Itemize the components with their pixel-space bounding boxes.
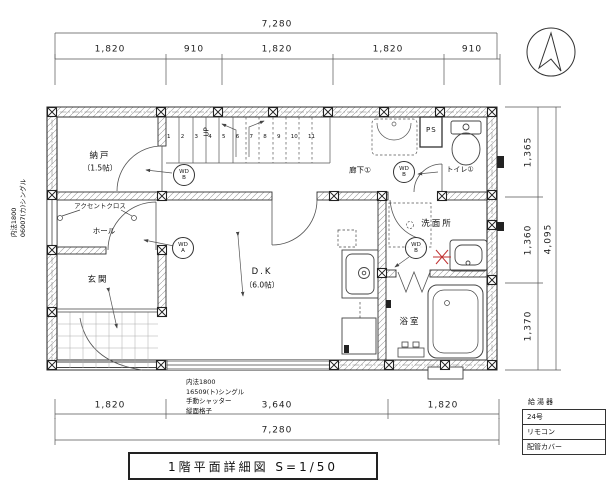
- stairs: [166, 117, 330, 163]
- room-label-entrance: 玄関: [87, 276, 108, 285]
- accent-cloth-label: アクセントクロス: [74, 203, 126, 210]
- stair-number: 7: [250, 134, 254, 140]
- bottom-window-note: 内法1800 16509(ト)シングル 手動シャッター 縦面格子: [186, 378, 244, 416]
- kitchen-sink-fixture: [338, 230, 378, 354]
- dim-right-seg-3: 1,370: [525, 311, 534, 342]
- door-arcs: [80, 146, 442, 370]
- stair-number: 3: [195, 134, 199, 140]
- bottom-window-note-line: 16509(ト)シングル: [186, 388, 244, 398]
- dim-top-seg-1: 1,820: [95, 46, 126, 55]
- dim-bottom-seg-1: 1,820: [95, 402, 126, 411]
- room-label-dk: D.K: [252, 268, 273, 277]
- vanity-fixture: [450, 240, 487, 271]
- bottom-window-note-line: 内法1800: [186, 378, 244, 388]
- dim-top-seg-5: 910: [462, 46, 482, 55]
- dim-top-seg-2: 910: [184, 46, 204, 55]
- dim-right-seg-2: 1,360: [525, 225, 534, 256]
- door-tag-wd-b-washroom: WD B: [405, 237, 427, 259]
- dim-bottom-seg-3: 1,820: [428, 402, 459, 411]
- heater-row: 配管カバー: [522, 439, 606, 455]
- stair-step-numbers: 1 2 3 4 5 6 7 8 9 10 11: [167, 134, 315, 140]
- bottom-window-note-line: 縦面格子: [186, 407, 244, 417]
- stair-number: 5: [222, 134, 226, 140]
- room-label-toilet: トイレ①: [446, 167, 473, 174]
- drawing-title-block: 1階平面詳細図 S=1/50: [128, 452, 378, 480]
- room-label-corridor: 廊下①: [349, 166, 371, 174]
- dimension-lines: [55, 33, 561, 445]
- room-label-storage-size: （1.5帖）: [83, 164, 117, 172]
- stair-number: 11: [308, 134, 315, 140]
- north-arrow-icon: [527, 28, 575, 76]
- floor-plan-drawing: [0, 0, 608, 480]
- door-tag-letter: A: [181, 248, 185, 254]
- red-markup: [433, 250, 451, 264]
- dim-top-seg-4: 1,820: [373, 46, 404, 55]
- door-tag-letter: B: [402, 172, 406, 178]
- left-window-note-line: 内法1800: [10, 179, 19, 237]
- room-label-hall: ホール: [93, 227, 116, 235]
- heater-row: 24号: [522, 409, 606, 424]
- bottom-window-note-line: 手動シャッター: [186, 397, 244, 407]
- heater-row: リモコン: [522, 424, 606, 439]
- porch-tiles: [57, 309, 158, 368]
- door-tag-wd-a-hall: WD A: [172, 237, 194, 259]
- dim-bottom-total: 7,280: [262, 427, 293, 436]
- room-label-bathroom: 浴室: [399, 318, 420, 327]
- stair-number: 8: [263, 134, 267, 140]
- heater-spec-table: 給湯器 24号 リモコン 配管カバー: [522, 396, 606, 455]
- heater-unit-marks: [497, 156, 504, 231]
- toilet-fixture: [451, 121, 481, 165]
- stair-number: 4: [208, 134, 212, 140]
- accent-cloth-leaders: [58, 210, 137, 221]
- ps-label: PS: [426, 126, 437, 134]
- dim-top-seg-3: 1,820: [262, 46, 293, 55]
- room-label-storage: 納戸: [89, 152, 110, 161]
- dim-right-total: 4,095: [545, 224, 554, 255]
- door-tag-letter: B: [182, 175, 186, 181]
- room-label-dk-size: （6.0帖）: [245, 281, 279, 289]
- door-tag-wd-b-storage: WD B: [173, 164, 195, 186]
- left-window-note: 内法1800 06007(カ)シングル: [10, 179, 28, 237]
- dim-top-total: 7,280: [262, 21, 293, 30]
- left-window-note-line: 06007(カ)シングル: [19, 179, 28, 237]
- door-tag-wd-b-corridor: WD B: [393, 161, 415, 183]
- room-label-washroom: 洗面所: [421, 220, 453, 229]
- drawing-title: 1階平面詳細図 S=1/50: [168, 458, 338, 475]
- stair-number: 10: [291, 134, 298, 140]
- washbasin-fixture: [372, 119, 417, 155]
- floor-plan-sheet: 7,280 1,820 910 1,820 1,820 910 1,820 3,…: [0, 0, 608, 480]
- stair-number: 9: [277, 134, 281, 140]
- stair-number: 1: [167, 134, 171, 140]
- dim-bottom-seg-2: 3,640: [262, 402, 293, 411]
- stair-number: 2: [181, 134, 185, 140]
- door-tag-letter: B: [414, 248, 418, 254]
- heater-title: 給湯器: [522, 396, 606, 409]
- stair-number: 6: [236, 134, 240, 140]
- dim-right-seg-1: 1,365: [525, 137, 534, 168]
